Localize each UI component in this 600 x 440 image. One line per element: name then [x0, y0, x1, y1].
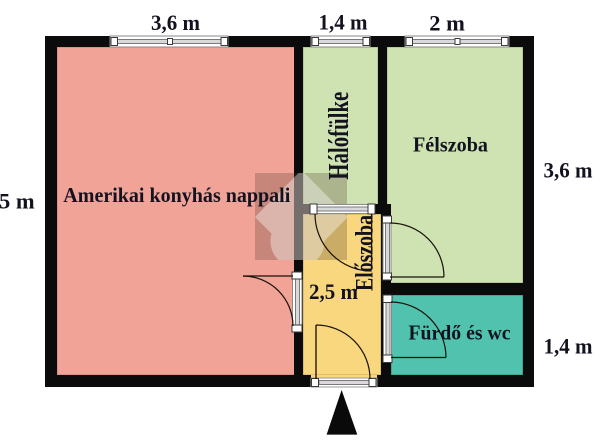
svg-text:Félszoba: Félszoba — [413, 133, 488, 157]
svg-text:Fürdő és wc: Fürdő és wc — [409, 321, 511, 345]
svg-text:3,6 m: 3,6 m — [544, 158, 593, 183]
svg-text:3,6 m: 3,6 m — [151, 10, 200, 35]
svg-text:1,4 m: 1,4 m — [319, 10, 368, 35]
svg-text:Amerikai konyhás nappali: Amerikai konyhás nappali — [63, 183, 290, 207]
svg-text:5 m: 5 m — [0, 189, 35, 214]
svg-text:1,4 m: 1,4 m — [544, 334, 593, 359]
svg-text:2,5 m: 2,5 m — [309, 279, 358, 304]
svg-text:2 m: 2 m — [429, 11, 465, 36]
svg-text:Hálófülke: Hálófülke — [324, 92, 355, 180]
